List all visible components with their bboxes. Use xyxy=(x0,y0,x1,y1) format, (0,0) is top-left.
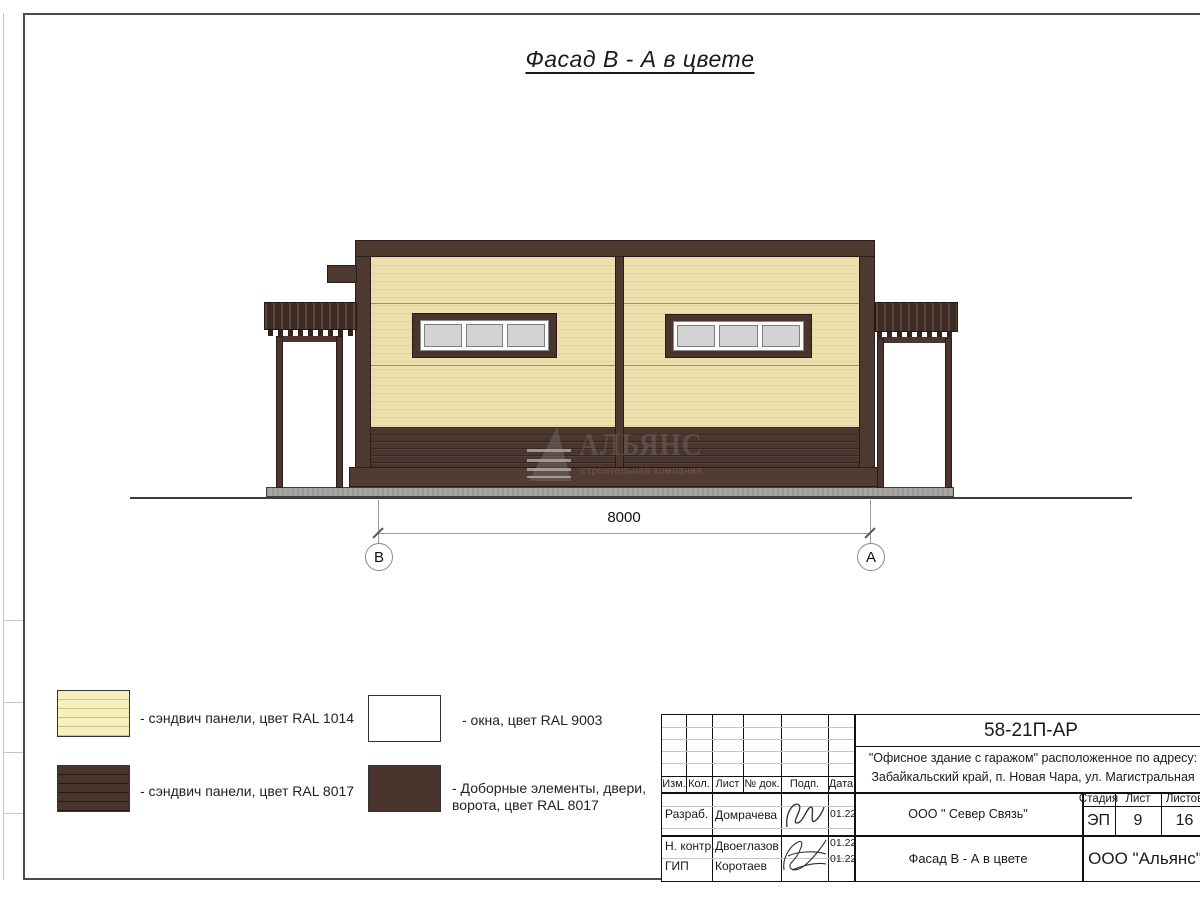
stamp-line xyxy=(662,763,854,764)
legend-swatch-window xyxy=(368,695,441,742)
axis-marker-a: А xyxy=(857,543,885,571)
window-pane xyxy=(424,324,462,347)
eave-beam xyxy=(327,265,357,283)
margin-strip-divider xyxy=(3,752,23,753)
stage-value: ЭП xyxy=(1082,806,1115,835)
project-address-line1: "Офисное здание с гаражом" расположенное… xyxy=(858,751,1200,765)
margin-strip-divider xyxy=(3,620,23,621)
panel-seam xyxy=(371,303,615,304)
title-block: Изм. Кол. Лист № док. Подп. Дата Разраб.… xyxy=(661,714,1200,882)
legend-label: - сэндвич панели, цвет RAL 8017 xyxy=(140,783,354,800)
plinth xyxy=(349,467,881,487)
roof-band xyxy=(355,240,875,257)
wainscot-left xyxy=(371,427,615,467)
wainscot-right xyxy=(624,427,859,467)
row-name: Коротаев xyxy=(715,859,767,873)
stamp-line xyxy=(854,746,1200,747)
legend-swatch-panel-light xyxy=(57,690,130,737)
col-header-podp: Подп. xyxy=(781,776,828,792)
col-header-data: Дата xyxy=(828,776,854,792)
canopy-left-roof xyxy=(264,302,357,330)
frame-top xyxy=(23,13,1200,15)
panel-seam xyxy=(371,365,615,366)
legend-label: - окна, цвет RAL 9003 xyxy=(462,712,602,729)
panel-seam xyxy=(624,365,859,366)
stamp-line xyxy=(662,727,854,728)
sheet-label: Лист xyxy=(1115,792,1161,806)
canopy-right-post-inner xyxy=(877,338,884,488)
margin-strip-divider xyxy=(3,813,23,814)
canopy-left-beam xyxy=(276,336,343,342)
stamp-line xyxy=(662,739,854,740)
company-name: ООО "Альянс" xyxy=(1082,836,1200,881)
window-right xyxy=(665,314,812,358)
window-frame xyxy=(420,320,549,351)
dimension-line xyxy=(378,533,871,534)
window-left xyxy=(412,313,557,358)
corner-pillar-left xyxy=(355,256,371,468)
col-header-kol: Кол. xyxy=(686,776,712,792)
center-divider xyxy=(615,256,624,468)
axis-marker-b: В xyxy=(365,543,393,571)
project-address-line2: Забайкальский край, п. Новая Чара, ул. М… xyxy=(858,770,1200,784)
window-pane xyxy=(466,324,504,347)
row-name: Домрачева xyxy=(715,808,777,822)
signature-icon xyxy=(783,797,827,833)
stamp-line xyxy=(662,751,854,752)
legend-label: - сэндвич панели, цвет RAL 1014 xyxy=(140,710,354,727)
sheets-label: Листов xyxy=(1161,792,1200,806)
canopy-right-beam xyxy=(877,337,952,343)
canopy-right-roof xyxy=(875,302,958,332)
row-role: Н. контр. xyxy=(665,839,715,853)
margin-strip-line xyxy=(3,13,4,880)
panel-seam xyxy=(624,303,859,304)
window-pane xyxy=(762,325,800,347)
sheets-value: 16 xyxy=(1161,806,1200,835)
sheet-value: 9 xyxy=(1115,806,1161,835)
col-header-list: Лист xyxy=(712,776,743,792)
drawing-sheet: { "page": { "title": "Фасад В - А в цвет… xyxy=(0,0,1200,900)
client-name: ООО " Север Связь" xyxy=(854,793,1082,835)
ground-line xyxy=(130,497,1132,499)
row-date: 01.22 xyxy=(830,837,856,849)
row-role: ГИП xyxy=(665,859,689,873)
legend-label: - Доборные элементы, двери, ворота, цвет… xyxy=(452,780,670,814)
row-name: Двоеглазов xyxy=(715,839,779,853)
row-date: 01.22 xyxy=(830,808,856,820)
stage-label: Стадия xyxy=(1082,792,1115,806)
col-header-dok: № док. xyxy=(743,776,781,792)
axis-letter: В xyxy=(374,549,384,566)
window-pane xyxy=(507,324,545,347)
axis-letter: А xyxy=(866,549,876,566)
stamp-sheet-title: Фасад В - А в цвете xyxy=(854,836,1082,881)
window-pane xyxy=(677,325,715,347)
window-pane xyxy=(719,325,757,347)
extension-line-right xyxy=(870,500,871,543)
frame-left xyxy=(23,13,25,880)
concrete-pad xyxy=(266,487,954,497)
legend-swatch-panel-dark xyxy=(57,765,130,812)
row-role: Разраб. xyxy=(665,807,708,821)
corner-pillar-right xyxy=(859,256,875,468)
page-title: Фасад В - А в цвете xyxy=(440,46,840,73)
signature-icon xyxy=(780,836,830,880)
doc-code: 58-21П-АР xyxy=(854,715,1200,746)
canopy-right-post-outer xyxy=(945,338,952,488)
legend-swatch-trim xyxy=(368,765,441,812)
row-date: 01.22 xyxy=(830,853,856,865)
margin-strip-divider xyxy=(3,702,23,703)
dimension-value: 8000 xyxy=(574,509,674,526)
canopy-left-post-inner xyxy=(336,336,343,488)
col-header-izm: Изм. xyxy=(662,776,686,792)
window-frame xyxy=(673,321,804,351)
canopy-left-post-outer xyxy=(276,336,283,488)
extension-line-left xyxy=(378,500,379,543)
